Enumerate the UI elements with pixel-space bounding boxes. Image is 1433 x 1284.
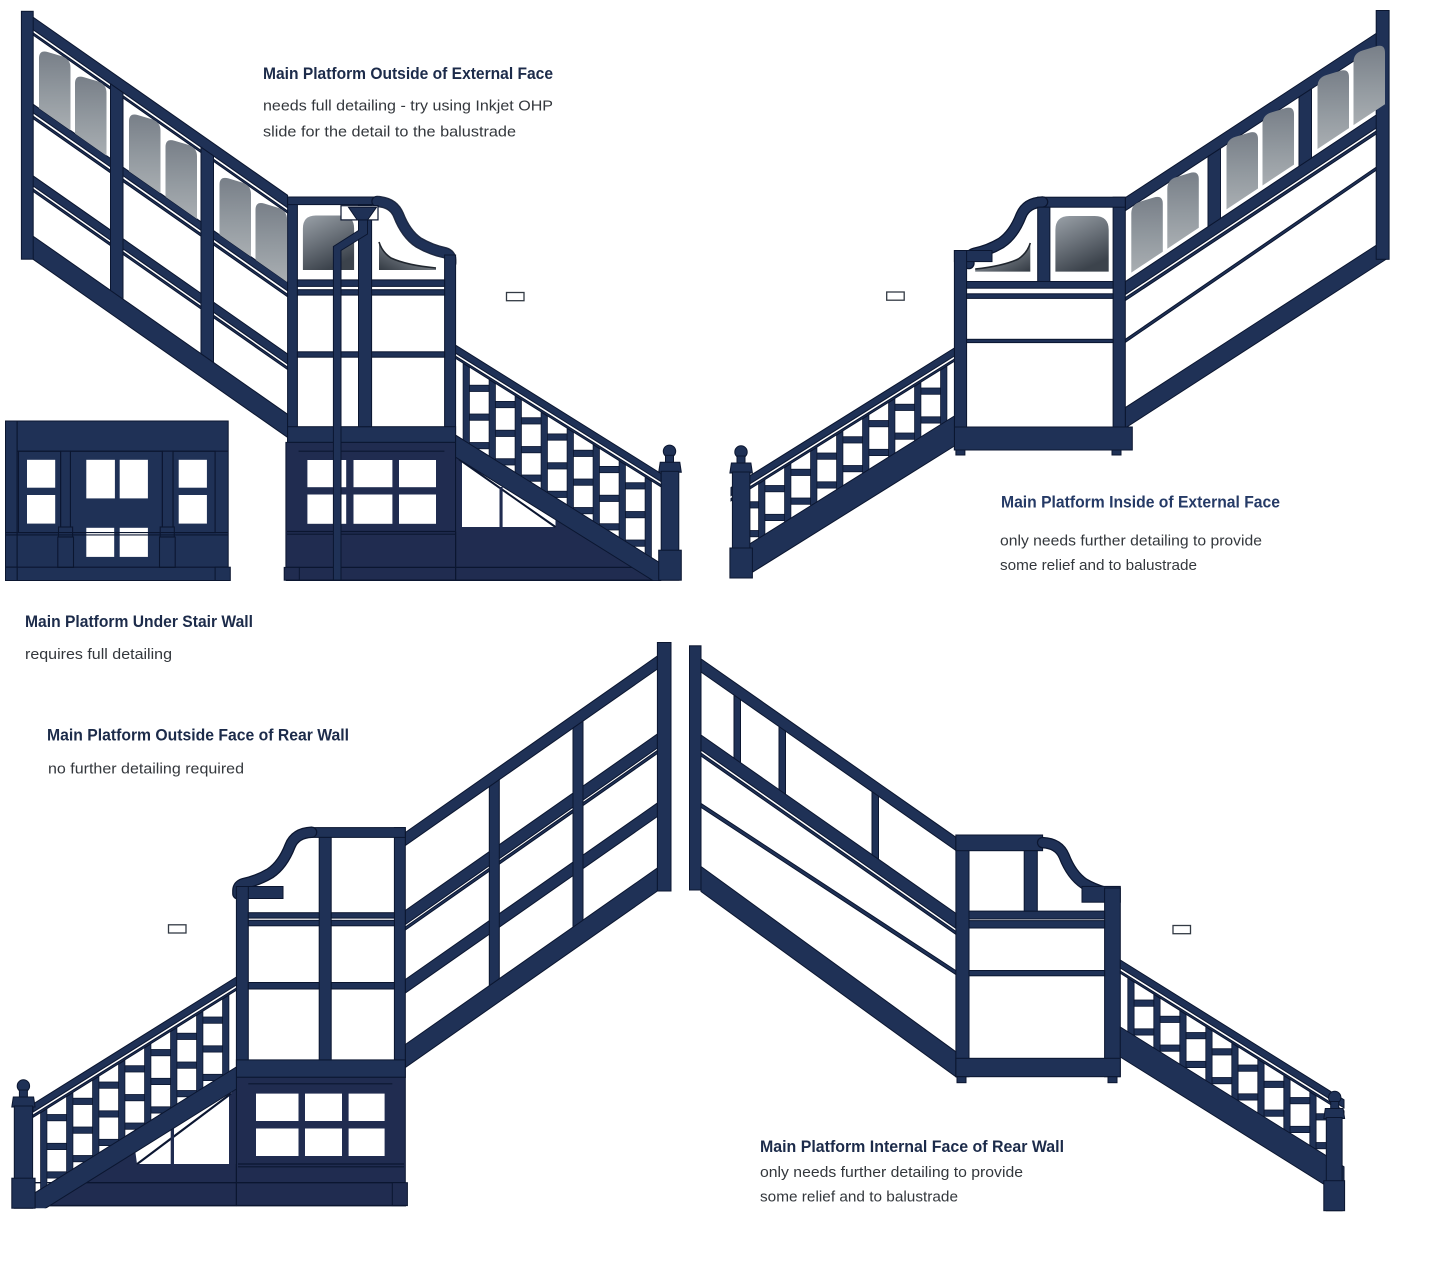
svg-text:Main Platform Under Stair Wall: Main Platform Under Stair Wall	[25, 613, 253, 631]
svg-text:needs full detailing - try usi: needs full detailing - try using Inkjet …	[263, 98, 553, 115]
svg-text:Main Platform Outside Face of: Main Platform Outside Face of Rear Wall	[47, 727, 349, 745]
svg-text:only needs further detailing t: only needs further detailing to provide	[1000, 533, 1262, 550]
svg-text:Main Platform Inside of Extern: Main Platform Inside of External Face	[1001, 494, 1280, 512]
svg-text:no further detailing required: no further detailing required	[48, 761, 244, 778]
svg-text:Main Platform Outside of Exter: Main Platform Outside of External Face	[263, 65, 553, 83]
svg-text:slide for the detail to the ba: slide for the detail to the balustrade	[263, 124, 516, 141]
svg-text:only needs further detailing t: only needs further detailing to provide	[760, 1164, 1023, 1181]
svg-text:requires full detailing: requires full detailing	[25, 646, 172, 663]
svg-text:some relief and to balustrade: some relief and to balustrade	[760, 1189, 958, 1206]
svg-text:some relief and to balustrade: some relief and to balustrade	[1000, 557, 1197, 574]
svg-text:Main Platform Internal Face of: Main Platform Internal Face of Rear Wall	[760, 1138, 1064, 1156]
